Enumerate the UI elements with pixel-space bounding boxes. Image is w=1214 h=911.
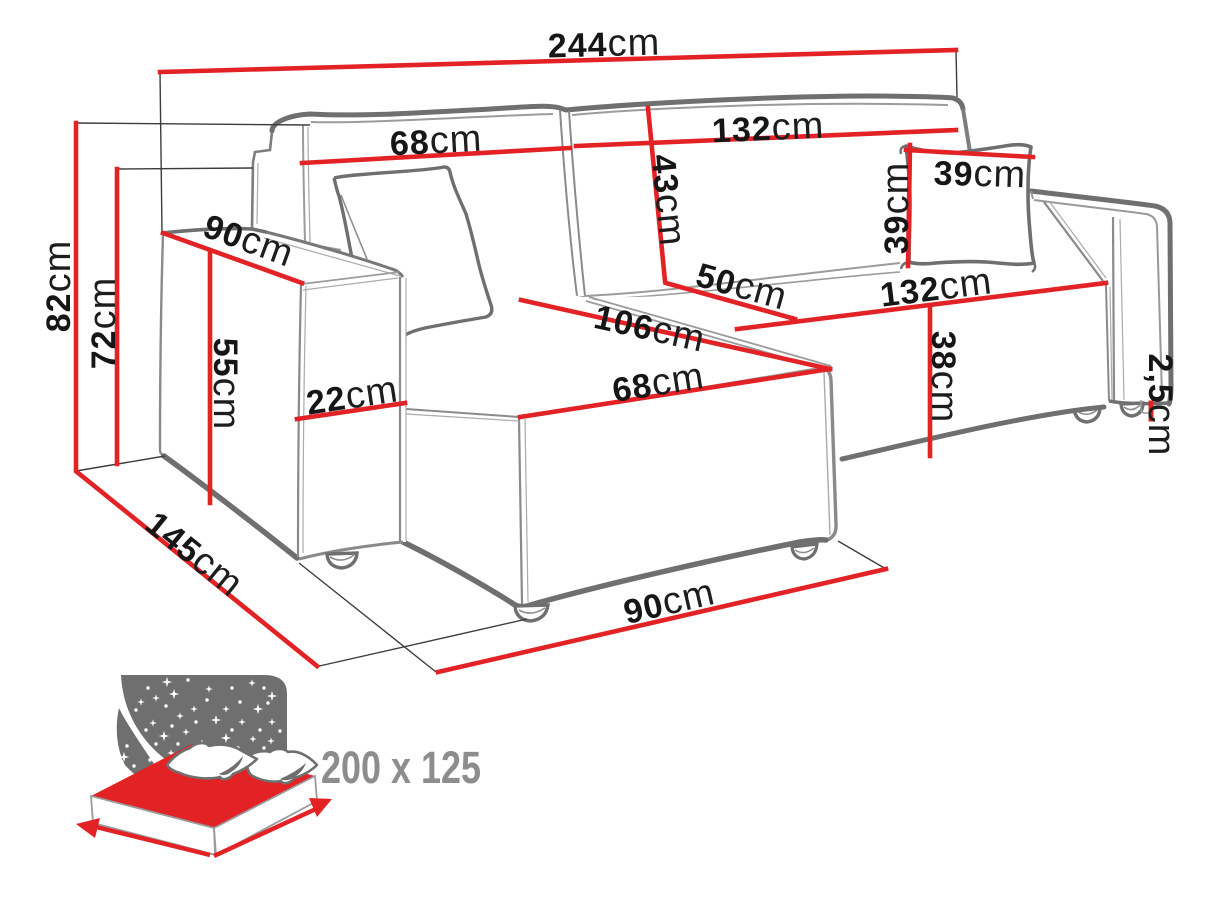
svg-text:82cm: 82cm [37,240,79,332]
svg-text:244cm: 244cm [547,22,660,67]
svg-text:72cm: 72cm [82,277,124,369]
svg-text:39cm: 39cm [875,162,917,254]
svg-text:39cm: 39cm [933,152,1027,197]
svg-text:38cm: 38cm [923,331,965,423]
svg-text:68cm: 68cm [389,118,484,165]
svg-text:200 x 125: 200 x 125 [321,742,481,793]
svg-text:2,5cm: 2,5cm [1140,354,1182,457]
svg-text:132cm: 132cm [711,105,825,152]
svg-text:55cm: 55cm [205,338,247,430]
